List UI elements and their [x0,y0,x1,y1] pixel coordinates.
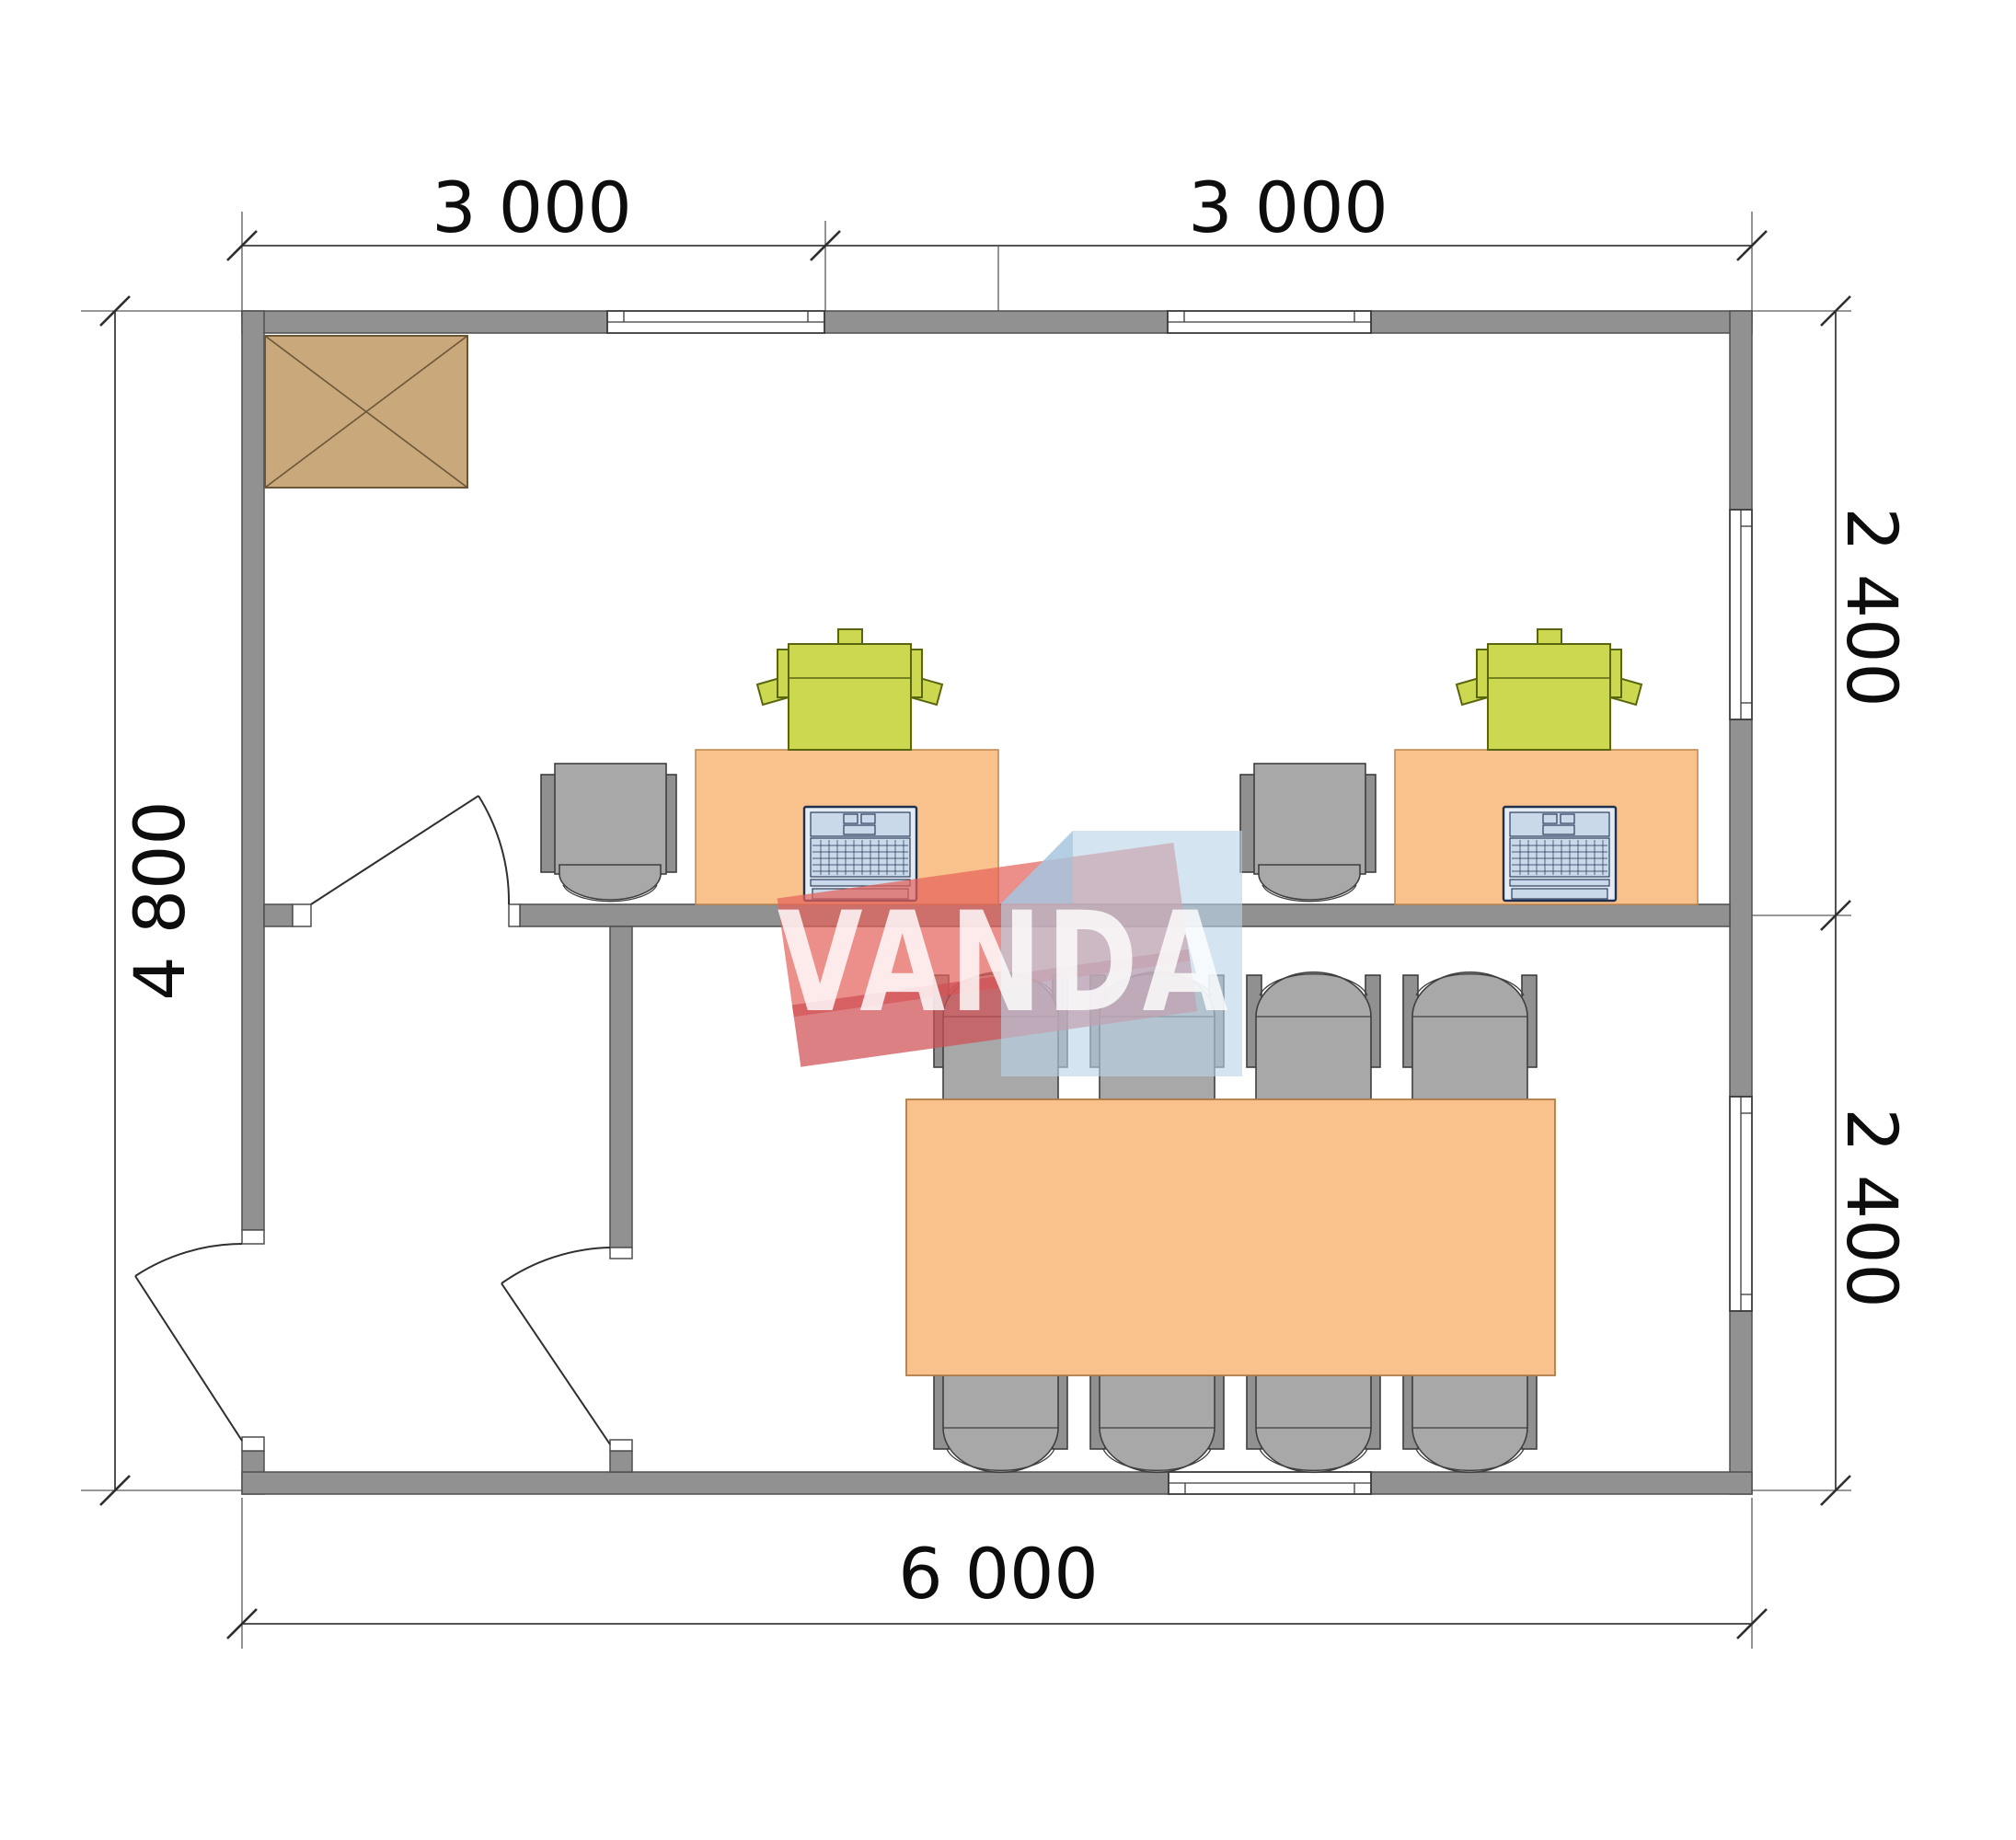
wall-vestibule-stub [610,1451,632,1472]
jamb-partition-right [509,904,520,926]
meeting-chair-bottom-4 [1403,1375,1537,1472]
wall-left-upper [242,311,264,1230]
dim-label-left: 4 800 [119,800,201,1001]
window-bottom [1169,1472,1371,1494]
floor-plan-page: 3 000 3 000 4 800 2 400 2 400 6 000 [0,0,2016,1840]
door-vestibule [501,1248,610,1444]
wall-bottom-1 [242,1472,1169,1494]
floor-plan-canvas: 3 000 3 000 4 800 2 400 2 400 6 000 [0,0,2016,1840]
meeting-chair-bottom-2 [1090,1375,1224,1472]
jamb-entrance-bottom [242,1437,264,1451]
dim-label-bottom: 6 000 [898,1533,1099,1615]
window-right-lower [1730,1097,1752,1311]
meeting-table [906,1099,1555,1375]
wall-right-1 [1730,311,1752,510]
wall-top-2 [824,311,1168,333]
wall-top-3 [1371,311,1752,333]
dim-label-top-right: 3 000 [1188,167,1388,248]
meeting-chair-bottom-1 [934,1375,1067,1472]
desk-set-1 [541,629,998,904]
door-partition [311,796,509,904]
watermark-text: VANDA [778,883,1232,1043]
doors [135,796,610,1444]
wall-top-1 [242,311,607,333]
wall-bottom-2 [1371,1472,1752,1494]
desk-set-2 [1240,629,1698,904]
wall-right-2 [1730,719,1752,1097]
door-entrance [135,1244,242,1441]
jamb-entrance-top [242,1230,264,1244]
jamb-partition-left [293,904,311,926]
dim-label-right-bottom: 2 400 [1831,1108,1913,1308]
window-right-upper [1730,510,1752,719]
jamb-vestibule-bottom [610,1440,632,1451]
meeting-chair-bottom-3 [1247,1375,1380,1472]
wall-right-3 [1730,1311,1752,1494]
dim-label-top-left: 3 000 [432,167,632,248]
wall-partition-stub [264,904,293,926]
meeting-chair-top-3 [1247,972,1380,1099]
window-top-right [1168,311,1371,333]
cabinet-box [265,336,467,488]
dim-label-right-top: 2 400 [1831,507,1913,707]
meeting-chair-top-4 [1403,972,1537,1099]
jamb-vestibule-top [610,1248,632,1259]
window-top-left [607,311,824,333]
wall-vestibule [610,926,632,1248]
